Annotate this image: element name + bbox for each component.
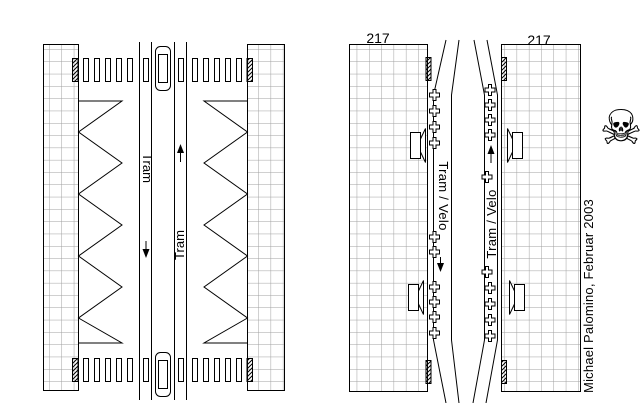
zigzag-marking-right (204, 101, 248, 343)
street-number-left: 217 (357, 30, 399, 46)
tram-label-north: Tram (172, 215, 188, 275)
tram-vehicle-bottom (156, 353, 171, 397)
tram-velo-label-south: Tram / Velo (435, 151, 451, 241)
loudspeaker-icon-right-bottom (510, 281, 525, 315)
crosswalk-bottom-hatch-left (73, 359, 79, 382)
street-number-right: 217 (518, 32, 560, 48)
sidewalk-grid-left (44, 45, 79, 391)
loudspeaker-icon-left-bottom (409, 281, 424, 315)
street-diagram-drawing (0, 0, 643, 403)
crosswalk-top-hatch-right (247, 59, 253, 82)
zigzag-marking-left (79, 101, 123, 343)
sidewalk-grid-right-217 (502, 45, 581, 392)
panel-street-after (350, 40, 581, 403)
tram-label-south: Tram (139, 138, 155, 198)
loudspeaker-icon-left-top (411, 129, 426, 163)
crosswalk-top-hatch-left (73, 59, 79, 82)
sidewalk-grid-left-217 (350, 45, 428, 392)
panel-street-before (44, 42, 285, 400)
arrow-down-south-lane-after (437, 257, 444, 272)
loudspeaker-icon-right-top (508, 129, 523, 163)
tram-velo-label-north: Tram / Velo (484, 179, 500, 269)
crosswalk-bottom-hatch-right (247, 359, 253, 382)
arrow-up-north-lane (177, 144, 184, 162)
sidewalk-grid-right (248, 45, 285, 391)
arrow-down-south-lane (143, 241, 150, 258)
diagram-canvas: Tram Tram 217 217 Tram / Velo Tram / Vel… (0, 0, 643, 403)
credit-text: Michael Palomino, Februar 2003 (581, 196, 597, 396)
skull-and-crossbones-icon: ☠ (595, 100, 643, 158)
arrow-up-north-lane-after (488, 145, 495, 163)
tram-vehicle-top (156, 47, 171, 91)
